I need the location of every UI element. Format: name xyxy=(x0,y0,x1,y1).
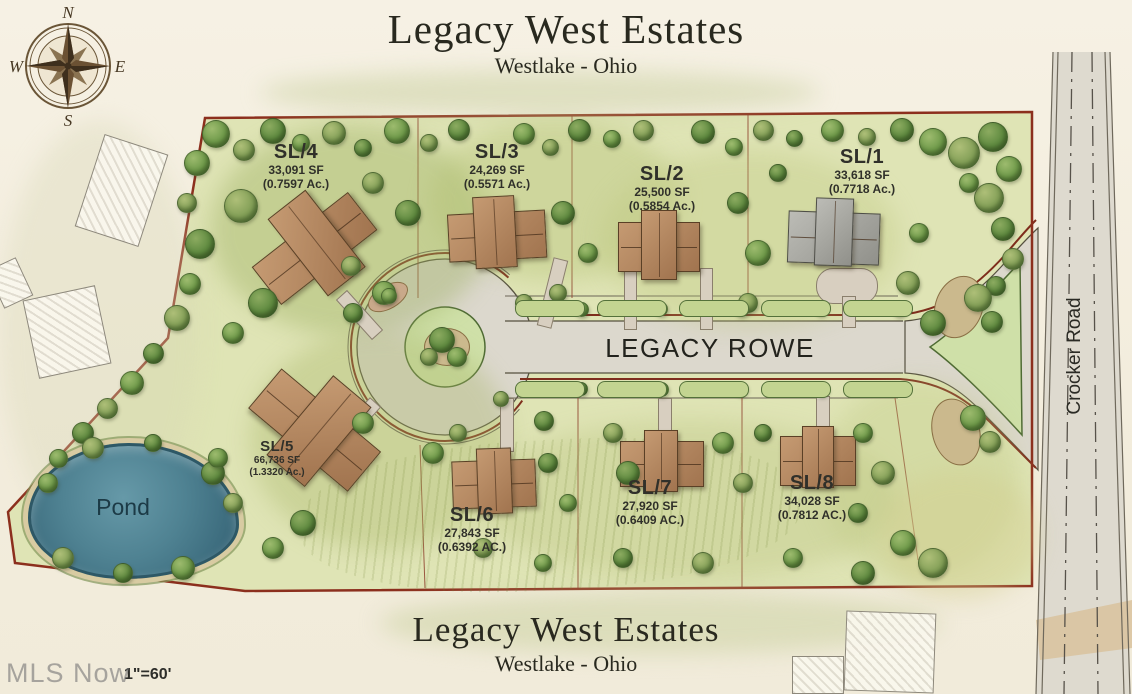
tree xyxy=(164,305,190,331)
pond-label: Pond xyxy=(63,494,183,521)
median-planting-strip xyxy=(515,381,585,398)
tree xyxy=(384,118,410,144)
map-scale: 1"=60' xyxy=(124,666,171,684)
tree xyxy=(49,449,68,468)
tree xyxy=(568,119,591,142)
lot-label-sl2: SL/2 25,500 SF (0.5854 Ac.) xyxy=(597,163,727,214)
median-planting-strip xyxy=(761,381,831,398)
tree xyxy=(143,343,164,364)
tree xyxy=(97,398,118,419)
tree xyxy=(964,284,992,312)
lot-label-sl6: SL/6 27,843 SF (0.6392 AC.) xyxy=(407,504,537,555)
tree xyxy=(262,537,284,559)
house-sl1 xyxy=(787,196,881,267)
house-sl2 xyxy=(618,210,700,280)
tree xyxy=(633,120,654,141)
tree xyxy=(821,119,844,142)
tree xyxy=(222,322,244,344)
lot-label-sl5: SL/5 66,736 SF (1.3320 Ac.) xyxy=(222,438,332,478)
tree xyxy=(551,201,575,225)
tree xyxy=(1002,248,1024,270)
tree xyxy=(493,391,509,407)
tree xyxy=(753,120,774,141)
header: Legacy West Estates Westlake - Ohio xyxy=(0,8,1132,79)
tree xyxy=(712,432,734,454)
tree xyxy=(559,494,577,512)
tree xyxy=(853,423,873,443)
tree xyxy=(727,192,749,214)
tree xyxy=(890,530,916,556)
tree xyxy=(223,493,243,513)
tree xyxy=(978,122,1008,152)
tree xyxy=(959,173,979,193)
median-planting-strip xyxy=(843,381,913,398)
page-title: Legacy West Estates xyxy=(0,8,1132,51)
tree xyxy=(144,434,162,452)
tree xyxy=(184,150,210,176)
tree xyxy=(896,271,920,295)
tree xyxy=(691,120,715,144)
tree xyxy=(603,423,623,443)
tree xyxy=(603,130,621,148)
page-subtitle: Westlake - Ohio xyxy=(0,53,1132,79)
tree xyxy=(177,193,197,213)
median-planting-strip xyxy=(761,300,831,317)
driveway xyxy=(700,268,713,330)
tree xyxy=(352,412,374,434)
house-wing xyxy=(814,197,854,266)
tree xyxy=(38,473,58,493)
tree xyxy=(960,405,986,431)
tree xyxy=(851,561,875,585)
tree xyxy=(613,548,633,568)
lot-label-sl3: SL/3 24,269 SF (0.5571 Ac.) xyxy=(432,141,562,192)
tree xyxy=(769,164,787,182)
tree xyxy=(449,424,467,442)
site-plan-map: N E S W Legacy West Estates Westlake - O… xyxy=(0,0,1132,694)
tree xyxy=(447,347,467,367)
tree xyxy=(890,118,914,142)
lot-label-sl1: SL/1 33,618 SF (0.7718 Ac.) xyxy=(797,146,927,197)
tree xyxy=(248,288,278,318)
tree xyxy=(534,554,552,572)
map-base-layer xyxy=(0,0,1132,694)
tree xyxy=(381,288,397,304)
tree xyxy=(745,240,771,266)
tree xyxy=(920,310,946,336)
tree xyxy=(395,200,421,226)
tree xyxy=(909,223,929,243)
tree xyxy=(290,510,316,536)
tree xyxy=(113,563,133,583)
lot-label-sl8: SL/8 34,028 SF (0.7812 AC.) xyxy=(747,472,877,523)
tree xyxy=(120,371,144,395)
tree xyxy=(996,156,1022,182)
tree xyxy=(538,453,558,473)
compass-south-label: S xyxy=(64,111,73,130)
median-planting-strip xyxy=(597,300,667,317)
tree xyxy=(82,437,104,459)
median-planting-strip xyxy=(679,381,749,398)
tree xyxy=(179,273,201,295)
tree xyxy=(341,256,361,276)
tree xyxy=(974,183,1004,213)
median-planting-strip xyxy=(515,300,585,317)
tree xyxy=(422,442,444,464)
tree xyxy=(918,548,948,578)
lot-label-sl4: SL/4 33,091 SF (0.7597 Ac.) xyxy=(231,141,361,192)
tree xyxy=(858,128,876,146)
footer-title: Legacy West Estates xyxy=(0,612,1132,649)
tree xyxy=(343,303,363,323)
tree xyxy=(362,172,384,194)
tree xyxy=(448,119,470,141)
street-label-legacy-rowe: LEGACY ROWE xyxy=(590,333,830,364)
tree xyxy=(578,243,598,263)
street-label-crocker-road: Crocker Road xyxy=(1064,281,1086,431)
tree xyxy=(981,311,1003,333)
lot-label-sl7: SL/7 27,920 SF (0.6409 AC.) xyxy=(585,477,715,528)
tree xyxy=(224,189,258,223)
tree xyxy=(979,431,1001,453)
tree xyxy=(692,552,714,574)
house-wing xyxy=(641,210,677,280)
tree xyxy=(991,217,1015,241)
tree xyxy=(185,229,215,259)
tree xyxy=(786,130,803,147)
house-sl3 xyxy=(446,193,550,273)
tree xyxy=(534,411,554,431)
tree xyxy=(725,138,743,156)
tree xyxy=(171,556,195,580)
tree xyxy=(420,348,438,366)
house-wing xyxy=(472,195,518,269)
median-planting-strip xyxy=(679,300,749,317)
median-planting-strip xyxy=(597,381,667,398)
tree xyxy=(202,120,230,148)
tree xyxy=(948,137,980,169)
tree xyxy=(754,424,772,442)
tree xyxy=(783,548,803,568)
median-planting-strip xyxy=(843,300,913,317)
tree xyxy=(52,547,74,569)
mls-watermark: MLS Now xyxy=(6,658,130,689)
